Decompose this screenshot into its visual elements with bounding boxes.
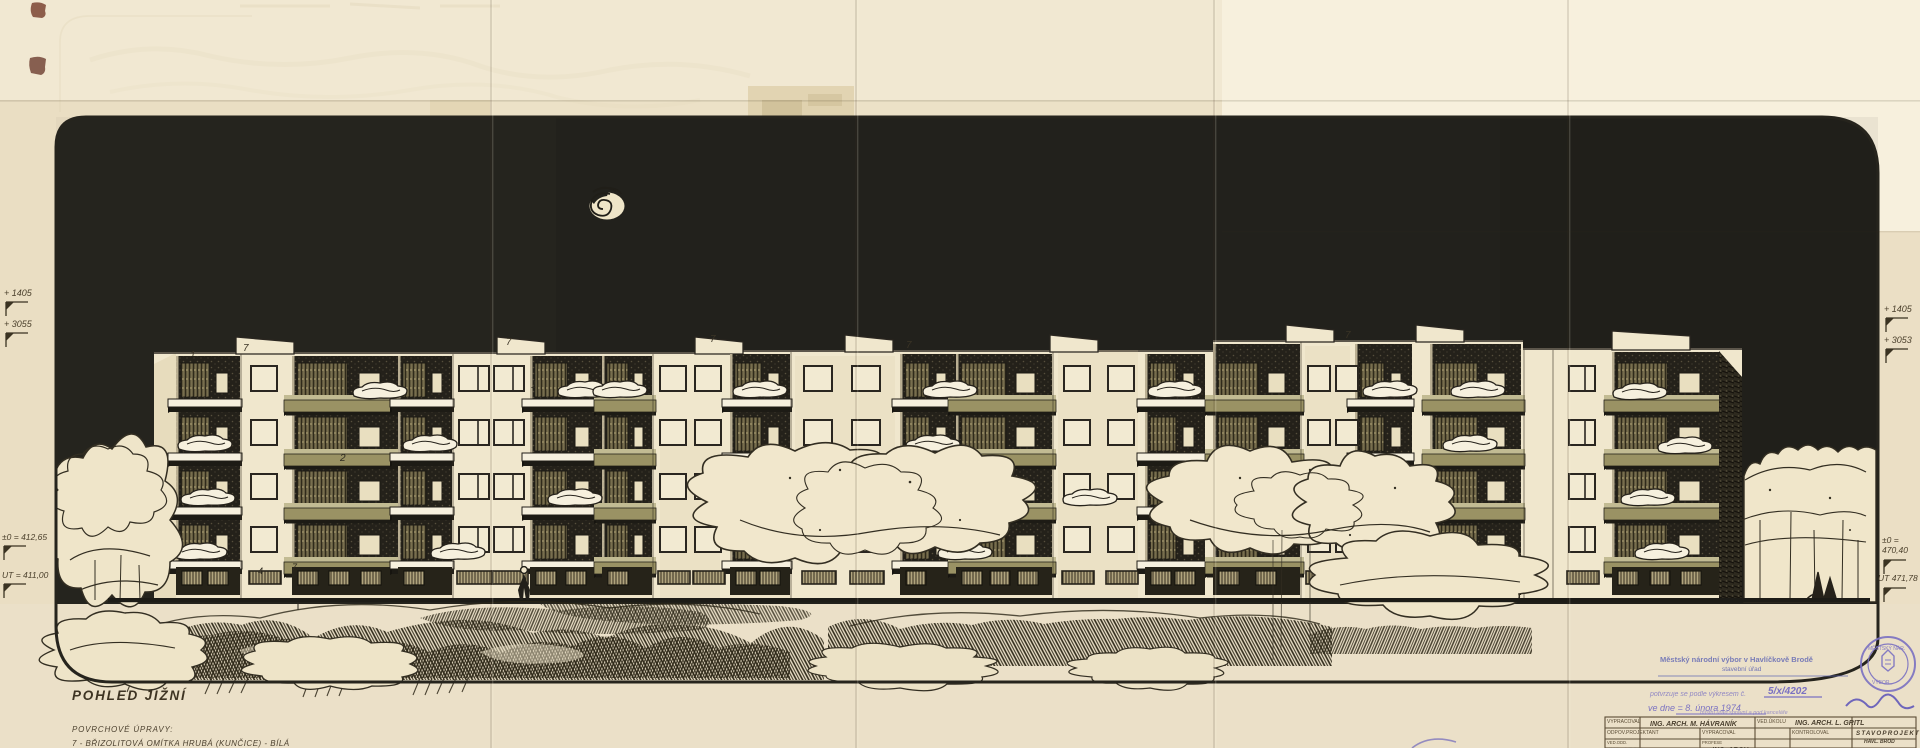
svg-text:470,40: 470,40 xyxy=(1882,545,1908,555)
svg-text:VYPRACOVAL: VYPRACOVAL xyxy=(1702,730,1736,736)
svg-text:PROFESE: PROFESE xyxy=(1702,740,1722,745)
svg-text:HAVL. BROD: HAVL. BROD xyxy=(1864,739,1895,745)
svg-text:POHLED JIŽNÍ: POHLED JIŽNÍ xyxy=(72,688,187,703)
svg-text:3: 3 xyxy=(390,422,396,433)
svg-text:stavební úřad: stavební úřad xyxy=(1722,666,1762,673)
svg-text:7: 7 xyxy=(243,343,249,354)
svg-text:4: 4 xyxy=(258,566,263,576)
svg-text:ING. ARCH. M. HÁVRANÍK: ING. ARCH. M. HÁVRANÍK xyxy=(1650,719,1738,728)
svg-text:VÝBOR: VÝBOR xyxy=(1872,679,1890,686)
svg-text:7 - BŘIZOLITOVÁ OMÍTKA HRUBÁ (: 7 - BŘIZOLITOVÁ OMÍTKA HRUBÁ (KUNČICE) -… xyxy=(72,739,290,748)
svg-text:ODPOV.PROJEKTANT: ODPOV.PROJEKTANT xyxy=(1607,730,1659,736)
svg-text:VED.ODD.: VED.ODD. xyxy=(1607,740,1627,745)
svg-text:Městský národní výbor v Havlíč: Městský národní výbor v Havlíčkově Brodě xyxy=(1660,655,1813,664)
svg-text:7: 7 xyxy=(710,334,716,345)
svg-text:VYPRACOVAL: VYPRACOVAL xyxy=(1607,719,1641,725)
svg-text:7: 7 xyxy=(506,337,512,348)
svg-text:POVRCHOVÉ ÚPRAVY:: POVRCHOVÉ ÚPRAVY: xyxy=(72,725,173,734)
svg-text:KONTROLOVAL: KONTROLOVAL xyxy=(1792,730,1829,736)
svg-text:místní úřad správní a pod kanc: místní úřad správní a pod kanceláře xyxy=(1700,710,1788,716)
svg-text:1: 1 xyxy=(531,380,537,391)
svg-text:+ 1405: + 1405 xyxy=(1884,304,1913,314)
svg-text:±0 =: ±0 = xyxy=(1882,535,1899,545)
svg-text:potvrzuje se podle výkresem č.: potvrzuje se podle výkresem č. xyxy=(1649,691,1746,698)
svg-text:+ 1405: + 1405 xyxy=(4,288,33,298)
svg-text:STAVOPROJEKT: STAVOPROJEKT xyxy=(1856,730,1920,737)
svg-text:VED.ÚKOLU: VED.ÚKOLU xyxy=(1757,718,1786,725)
svg-text:MĚSTSKÝ NÁR.: MĚSTSKÝ NÁR. xyxy=(1868,644,1905,652)
svg-text:ING. ARCH. L. GRITL: ING. ARCH. L. GRITL xyxy=(1795,720,1864,727)
svg-text:±0 = 412,65: ±0 = 412,65 xyxy=(2,532,47,542)
svg-text:UT 471,78: UT 471,78 xyxy=(1878,573,1918,583)
svg-text:+ 3053: + 3053 xyxy=(1884,335,1912,345)
svg-text:7: 7 xyxy=(906,340,912,351)
svg-text:2: 2 xyxy=(339,453,346,464)
svg-text:+ 3055: + 3055 xyxy=(4,319,33,329)
svg-text:5/x/4202: 5/x/4202 xyxy=(1768,686,1807,697)
svg-text:7: 7 xyxy=(1345,330,1351,341)
svg-text:UT = 411,00: UT = 411,00 xyxy=(2,570,49,580)
